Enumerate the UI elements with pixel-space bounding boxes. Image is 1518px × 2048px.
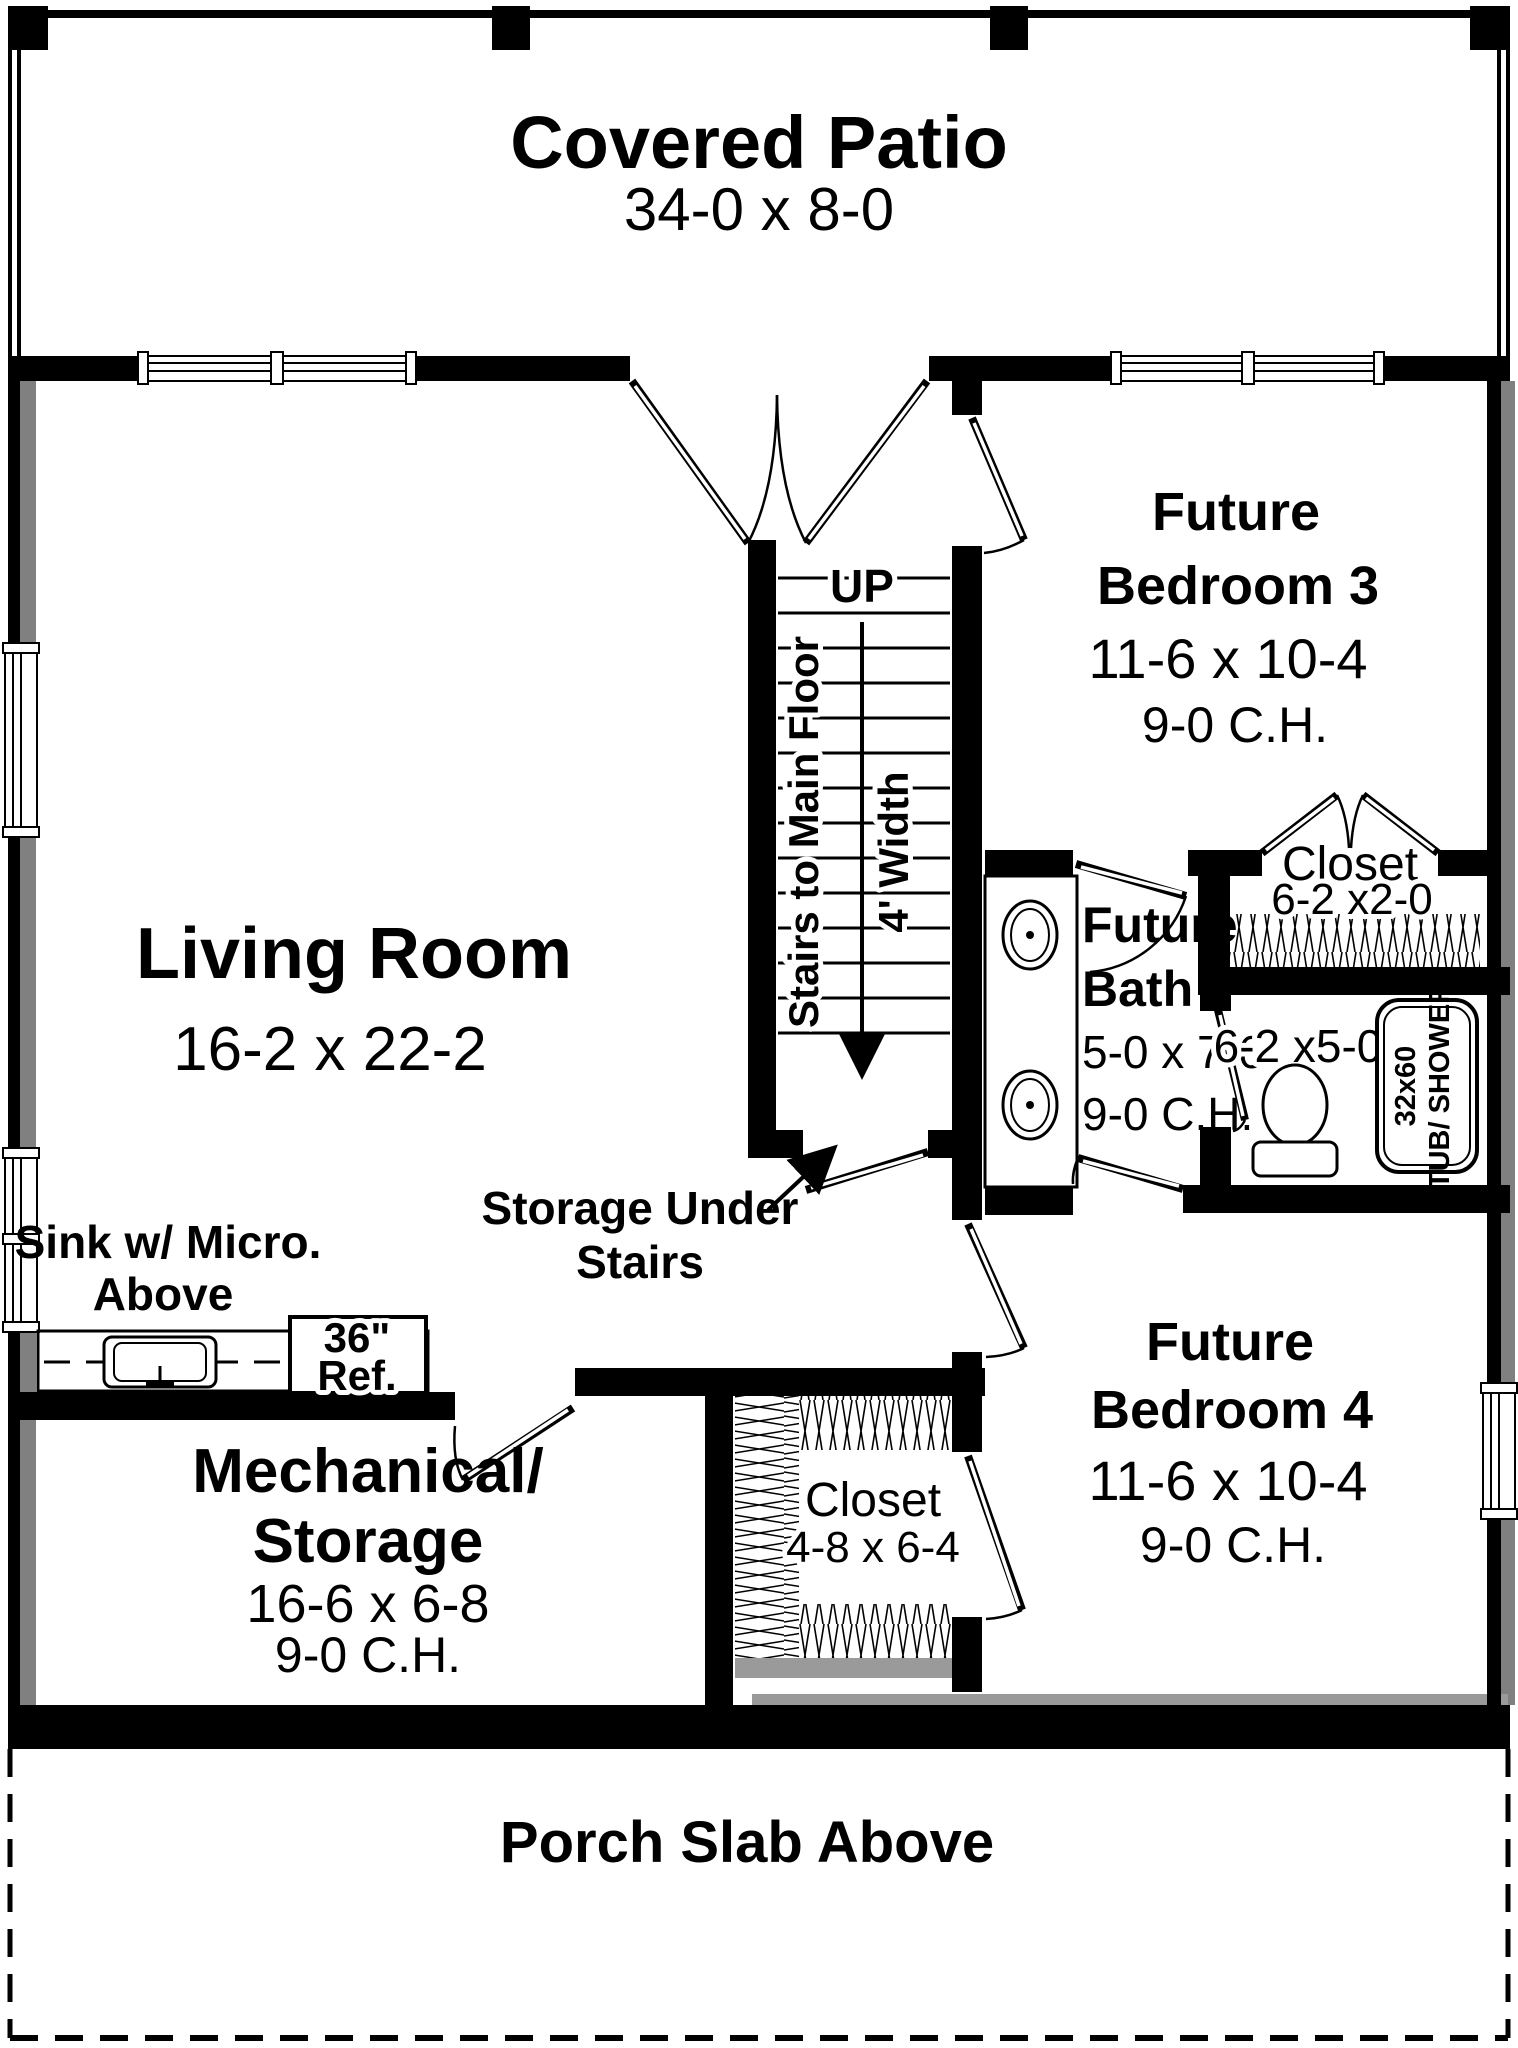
hall-door-jamb — [952, 381, 982, 415]
bedroom4-ceiling: 9-0 C.H. — [1140, 1517, 1326, 1573]
stair-bottom-wall — [748, 1130, 803, 1158]
bath-name-line2: Bath — [1082, 961, 1193, 1017]
patio-dims: 34-0 x 8-0 — [624, 176, 894, 243]
ref-label: Ref. — [317, 1352, 396, 1399]
bath-name-line1: Future — [1082, 897, 1238, 953]
stair-bottom-wall — [928, 1130, 982, 1158]
mechanical-name-line1: Mechanical/ — [192, 1437, 543, 1506]
bedroom3-name-line2: Bedroom 3 — [1097, 556, 1379, 616]
bedroom3-name-line1: Future — [1152, 482, 1320, 542]
bottom-wall-sill — [752, 1694, 1508, 1705]
storage-label-line1: Storage Under — [482, 1182, 799, 1234]
closet-bed4-top-wall — [575, 1368, 985, 1396]
patio-name: Covered Patio — [510, 101, 1008, 184]
bed4-wall — [952, 1352, 982, 1452]
stairs-label: Stairs to Main Floor — [780, 636, 827, 1028]
bottom-outer-wall — [8, 1705, 1510, 1749]
bath-ceiling: 9-0 C.H. — [1082, 1088, 1253, 1140]
mechanical-name-line2: Storage — [253, 1507, 484, 1576]
patio-right-wall-inner — [1497, 14, 1501, 356]
bed4-wall — [952, 1617, 982, 1692]
floor-plan-basement: Covered Patio 34-0 x 8-0 — [0, 0, 1518, 2048]
sink-label-line2: Above — [93, 1268, 234, 1320]
bedroom3-dims: 11-6 x 10-4 — [1088, 627, 1367, 690]
tub-label-line1: 32x60 — [1390, 1046, 1422, 1127]
mechanical-ceiling: 9-0 C.H. — [275, 1627, 461, 1683]
top-wall-segment — [8, 356, 140, 381]
bedroom3-ceiling: 9-0 C.H. — [1142, 697, 1328, 753]
window-top-left — [138, 352, 416, 384]
toilet-tank — [1253, 1142, 1337, 1176]
closet-bed4-name: Closet — [805, 1474, 941, 1527]
tub-label-line2: TUB/ SHOWER — [1424, 983, 1456, 1189]
top-wall-segment — [929, 356, 1113, 381]
stairs-width-label: 4' Width — [870, 771, 917, 932]
bath-bottom-wall — [985, 1187, 1073, 1215]
storage-label-line2: Stairs — [576, 1236, 704, 1288]
closet-bed4-dims: 4-8 x 6-4 — [786, 1523, 960, 1572]
patio-post — [8, 6, 48, 50]
patio-post — [492, 6, 530, 50]
patio-right-wall — [1506, 14, 1510, 356]
bedroom4-name-line1: Future — [1146, 1312, 1314, 1372]
patio-post — [990, 6, 1028, 50]
living-room-name: Living Room — [136, 914, 572, 994]
faucet-base — [146, 1380, 174, 1386]
stairs-up-label: UP — [830, 560, 894, 612]
closet-bed4-sill — [735, 1658, 952, 1678]
top-wall-segment — [416, 356, 630, 381]
toilet-room-wall — [1200, 995, 1231, 1011]
stair-right-wall — [952, 546, 982, 1158]
left-outer-wall — [8, 381, 20, 1705]
bath-top-wall — [985, 850, 1073, 876]
left-wall-shading — [20, 381, 36, 1705]
patio-left-wall — [8, 14, 12, 356]
closet-bed3-bottom-wall — [1198, 967, 1510, 995]
living-room-dims: 16-2 x 22-2 — [173, 1015, 487, 1084]
bed4-wall — [952, 1158, 982, 1220]
closet-bed3-dims: 6-2 x2-0 — [1271, 875, 1432, 924]
stair-left-wall — [748, 540, 776, 1158]
window-top-right — [1111, 352, 1384, 384]
closet-rod-hatching — [799, 1396, 952, 1450]
window-left-upper — [3, 643, 39, 837]
mechanical-dims: 16-6 x 6-8 — [246, 1574, 489, 1634]
floor-plan-drawing: Covered Patio 34-0 x 8-0 — [0, 0, 1518, 2048]
patio-front-wall — [8, 10, 1510, 18]
closet-rod-hatching — [799, 1604, 952, 1658]
patio-left-wall-inner — [17, 14, 21, 356]
bedroom4-dims: 11-6 x 10-4 — [1088, 1449, 1367, 1512]
patio-post — [1470, 6, 1510, 50]
mechanical-right-wall — [705, 1368, 733, 1710]
top-wall-segment — [1384, 356, 1510, 381]
porch-label: Porch Slab Above — [500, 1810, 994, 1875]
bedroom4-name-line2: Bedroom 4 — [1091, 1380, 1373, 1440]
window-right-bedroom4 — [1481, 1383, 1517, 1519]
sink-label-line1: Sink w/ Micro. — [15, 1216, 322, 1268]
toilet-icon — [1263, 1065, 1327, 1145]
bath-bottom-wall — [1183, 1185, 1510, 1213]
closet-bed3-jamb — [1438, 850, 1490, 876]
